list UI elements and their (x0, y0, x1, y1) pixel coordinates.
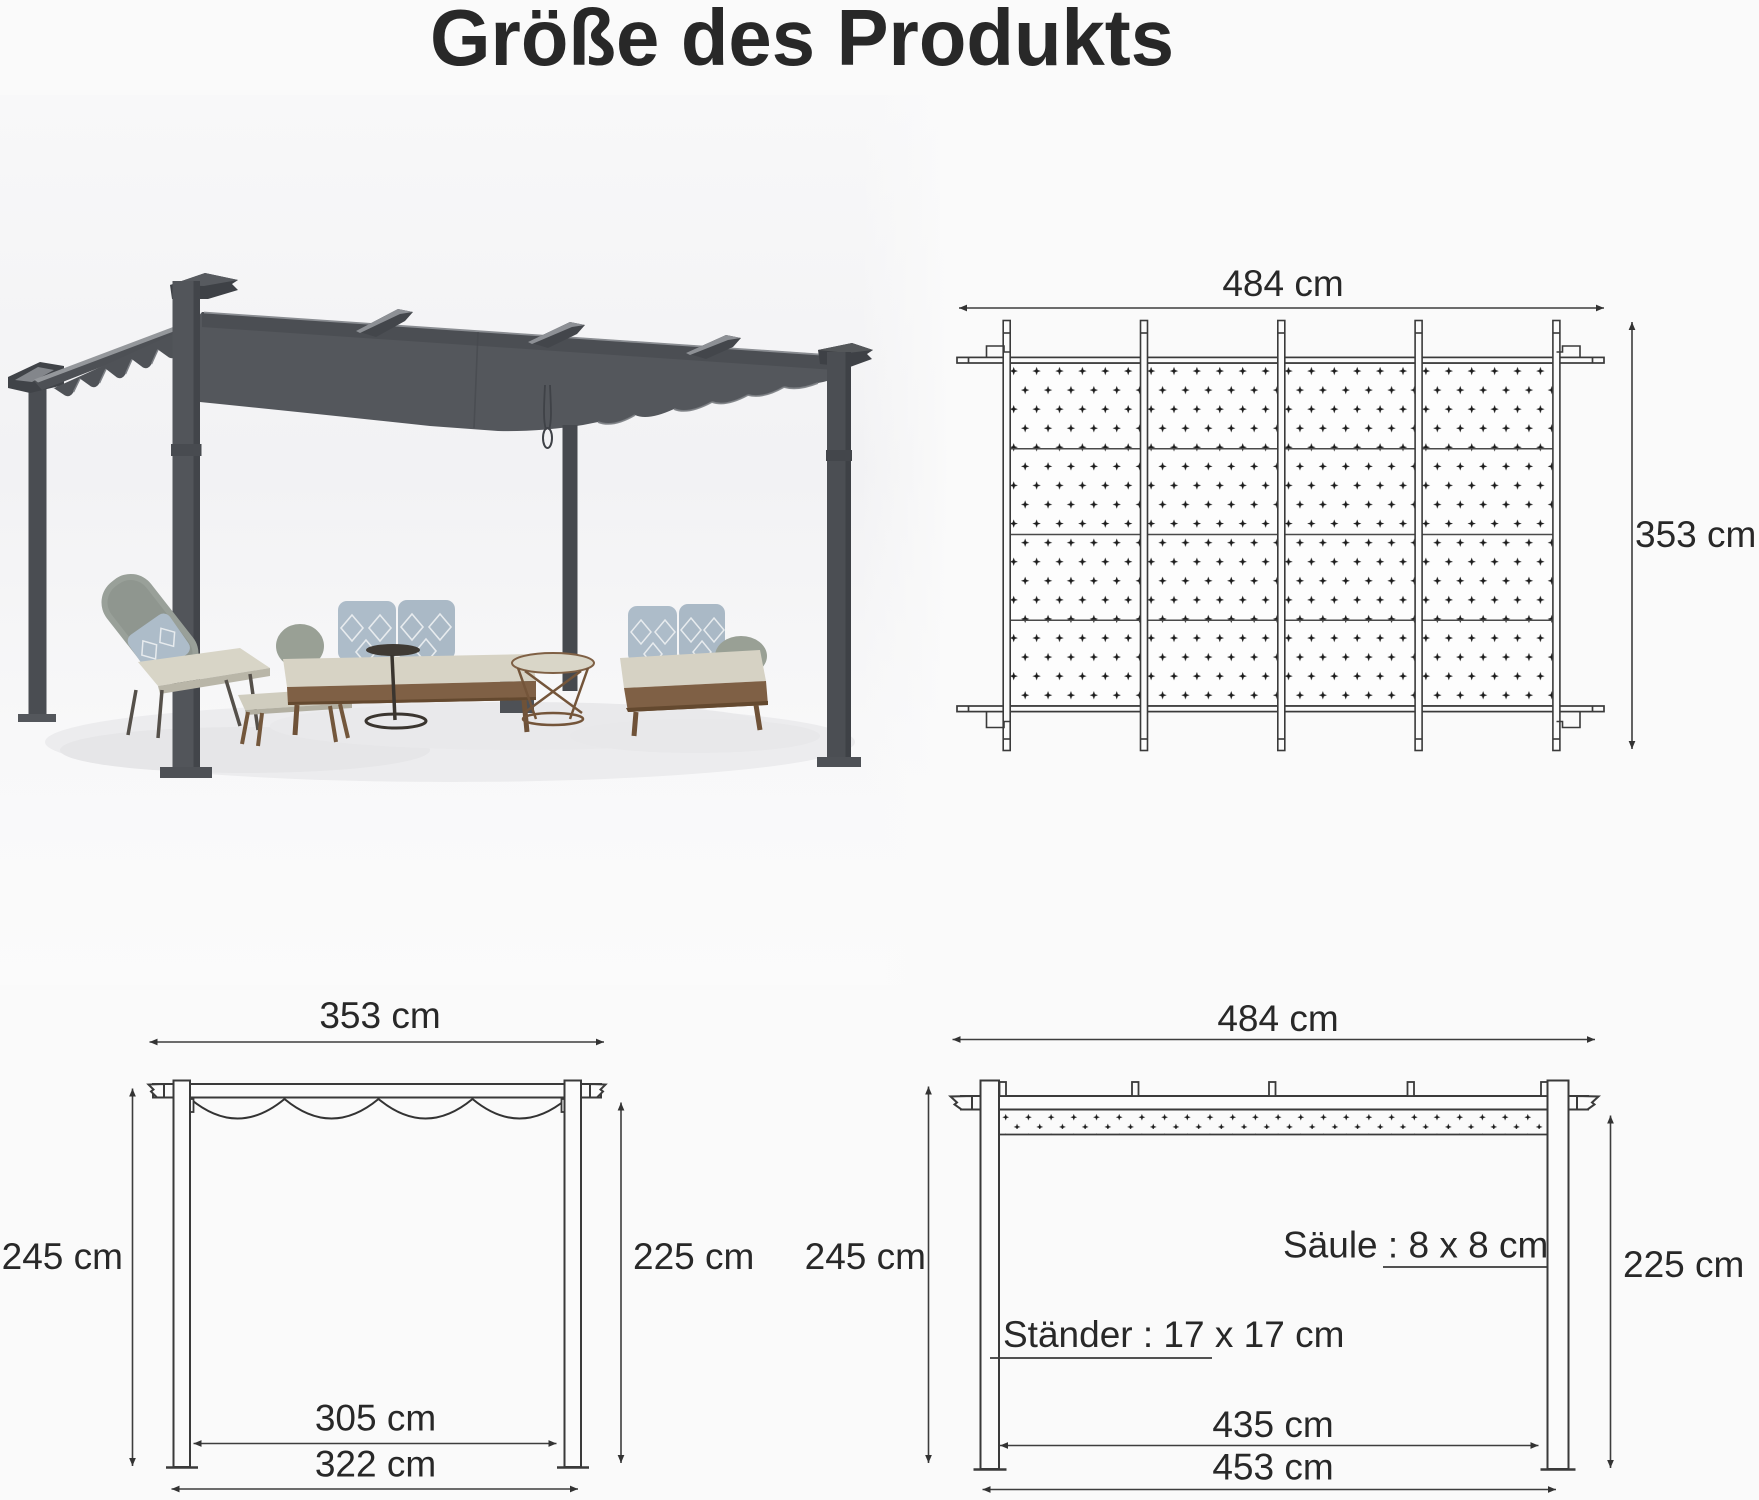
svg-text:225 cm: 225 cm (633, 1236, 754, 1277)
svg-text:Säule : 8 x 8 cm: Säule : 8 x 8 cm (1283, 1225, 1548, 1266)
svg-text:435 cm: 435 cm (1212, 1404, 1333, 1445)
svg-text:484 cm: 484 cm (1222, 263, 1343, 304)
svg-text:353 cm: 353 cm (319, 995, 440, 1036)
svg-text:484 cm: 484 cm (1217, 998, 1338, 1039)
svg-text:305 cm: 305 cm (315, 1398, 436, 1439)
svg-text:Ständer : 17 x 17 cm: Ständer : 17 x 17 cm (1003, 1314, 1344, 1355)
svg-text:245 cm: 245 cm (2, 1236, 123, 1277)
svg-text:Größe des Produkts: Größe des Produkts (430, 0, 1174, 82)
svg-text:322 cm: 322 cm (315, 1444, 436, 1485)
svg-text:353 cm: 353 cm (1635, 514, 1756, 555)
svg-text:225 cm: 225 cm (1623, 1244, 1744, 1285)
svg-text:245 cm: 245 cm (805, 1236, 926, 1277)
svg-text:453 cm: 453 cm (1212, 1447, 1333, 1488)
